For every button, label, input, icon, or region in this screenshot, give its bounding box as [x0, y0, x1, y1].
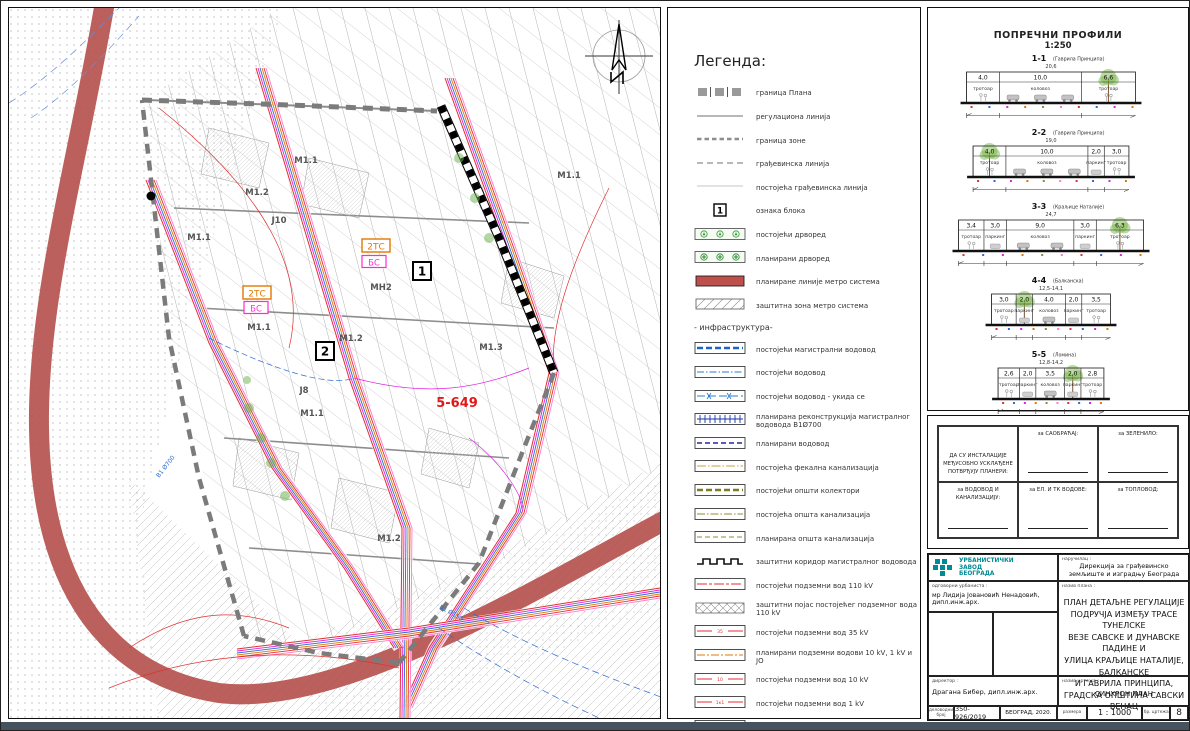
kv10-icon: 10: [694, 671, 750, 690]
svg-text:2ТС: 2ТС: [367, 243, 385, 253]
cross-sections-body: 1-1 (Гаврила Принципа) 20,6 4,010,06,6тр…: [928, 51, 1188, 421]
legend-item-label: планирани подземни водови 10 kV, 1 kV и …: [750, 649, 920, 665]
cross-sections-title: ПОПРЕЧНИ ПРОФИЛИ: [928, 30, 1188, 41]
zone-label: М1.3: [479, 343, 503, 353]
wv-remove-icon: [694, 388, 750, 407]
planned-ts-marker: 2ТС: [243, 286, 271, 300]
svg-text:паркинг: паркинг: [1086, 161, 1106, 166]
signature-cell-heating: за ТОПЛОВОД:: [1098, 482, 1178, 538]
legend-item: планиране линије метро система: [694, 273, 920, 292]
legend-item-label: граница Плана: [750, 89, 812, 97]
window-bottom-edge: [1, 722, 1189, 730]
legend-item-label: планирани водовод: [750, 440, 829, 448]
svg-text:коловоз: коловоз: [1031, 87, 1051, 92]
kol-bold-icon: [694, 482, 750, 501]
plan-title-cell: назив плана : ПЛАН ДЕТАЉНЕ РЕГУЛАЦИЈЕ ПО…: [1058, 581, 1190, 676]
svg-text:1к1: 1к1: [716, 700, 725, 706]
kv35-icon: 35: [694, 623, 750, 642]
kv10-plan-icon: [694, 647, 750, 666]
legend-panel: Легенда: граница Планарегулациона линија…: [667, 7, 921, 719]
signature-cell-traffic: за САОБРАЋАЈ:: [1018, 426, 1098, 482]
svg-text:4,0: 4,0: [985, 149, 995, 156]
title-block: УРБАНИСТИЧКИ ЗАВОД БЕОГРАДА одговорни ур…: [927, 553, 1189, 721]
number-label: деловодни број: [929, 708, 953, 717]
planned-bs-marker: БС: [244, 302, 268, 315]
legend-item-label: планирана реконструкција магистралног во…: [750, 413, 920, 429]
svg-text:паркинг: паркинг: [1075, 235, 1095, 240]
legend-item-label: граница зоне: [750, 137, 806, 145]
cross-section-2-2: 2-2 (Гаврила Принципа) 19,0 4,010,02,03,…: [928, 125, 1174, 195]
drawing-name-cell: назив цртежа : СИНХРОН ПЛАН: [1058, 676, 1190, 707]
signature-cell-electric: за ЕЛ. И ТК ВОДОВЕ:: [1018, 482, 1098, 538]
block-number-marker: 2: [316, 342, 334, 360]
zone-label: М1.1: [247, 323, 271, 333]
metro-zone-icon: [694, 296, 750, 315]
legend-item: граница зоне: [694, 131, 920, 150]
legend-item: заштитна зона метро система: [694, 296, 920, 315]
legend-item-label: планирани дрворед: [750, 255, 830, 263]
legend-item-label: грађевинска линија: [750, 160, 829, 168]
svg-text:тротоар: тротоар: [1086, 309, 1106, 314]
svg-text:коловоз: коловоз: [1037, 161, 1057, 166]
svg-text:2: 2: [321, 345, 329, 359]
legend-item: постојећи водовод: [694, 364, 920, 383]
legend-item-label: постојећи дрворед: [750, 231, 826, 239]
svg-text:2,0: 2,0: [1020, 297, 1030, 304]
planned-ts-marker: 2ТС: [362, 239, 390, 253]
svg-text:паркинг: паркинг: [1063, 383, 1083, 388]
kv110-zone-icon: [694, 600, 750, 619]
svg-text:3-3: 3-3: [1032, 202, 1046, 211]
signature-line: [1028, 472, 1087, 473]
svg-text:1: 1: [717, 206, 723, 216]
svg-text:(Краљице Наталије): (Краљице Наталије): [1053, 205, 1104, 211]
legend-item: постојећа грађевинска линија: [694, 178, 920, 197]
svg-text:тротоар: тротоар: [994, 309, 1014, 314]
legend-item-label: планирана општа канализација: [750, 535, 874, 543]
svg-text:6,6: 6,6: [1104, 75, 1114, 82]
dash-bold-gray-icon: [694, 131, 750, 150]
svg-text:тротоар: тротоар: [1107, 161, 1127, 166]
svg-text:1: 1: [418, 265, 426, 279]
legend-item: планирани подземни водови 10 kV, 1 kV и …: [694, 647, 920, 666]
urbanist-cell: одговорни урбаниста : мр Лидија Јованови…: [928, 581, 1058, 612]
metro-fill-icon: [694, 273, 750, 292]
zone-label: Ј8: [298, 386, 308, 396]
svg-text:5-5: 5-5: [1032, 350, 1047, 359]
svg-text:тротоар: тротоар: [1110, 235, 1130, 240]
kv1-icon: 1к1: [694, 694, 750, 713]
trees-planned-icon: [694, 249, 750, 268]
legend-item-label: ознака блока: [750, 207, 805, 215]
elevation-red-label: 5-649: [436, 396, 478, 411]
svg-text:9,0: 9,0: [1035, 223, 1045, 230]
legend-item: планирана реконструкција магистралног во…: [694, 411, 920, 430]
planned-bs-marker: БС: [362, 256, 386, 269]
legend-item-label: постојећа фекална канализација: [750, 464, 879, 472]
svg-text:(Гаврила Принципа): (Гаврила Принципа): [1053, 57, 1105, 63]
svg-text:тротоар: тротоар: [999, 383, 1019, 388]
svg-text:2-2: 2-2: [1032, 128, 1046, 137]
signature-line: [948, 528, 1007, 529]
client-name: Дирекција за грађевинско земљиште и изгр…: [1059, 562, 1189, 578]
svg-text:2,0: 2,0: [1091, 149, 1101, 156]
wv-recon-icon: [694, 411, 750, 430]
cross-section-4-4: 4-4 (Балканска) 12,5-14,1 3,02,04,02,03,…: [928, 273, 1174, 343]
legend-item: постојећи подземни вод 110 kV: [694, 576, 920, 595]
legend-item: планирани водовод: [694, 435, 920, 454]
empty-cell: [993, 612, 1058, 676]
svg-text:2,0: 2,0: [1068, 371, 1078, 378]
sheet-number: 8: [1170, 705, 1188, 720]
svg-text:паркинг: паркинг: [1018, 383, 1038, 388]
zone-label: МН2: [370, 283, 392, 293]
signature-line: [1108, 528, 1167, 529]
urbanist-name: мр Лидија Јовановић Ненадовић, дипл.инж.…: [929, 589, 1057, 606]
block-number-marker: 1: [413, 262, 431, 280]
zone-label: М1.1: [294, 156, 318, 166]
svg-text:4,0: 4,0: [1044, 297, 1054, 304]
director-cell: директор : Драгана Бибер, дипл.инж.арх.: [928, 676, 1058, 707]
plan-boundary-icon: [694, 84, 750, 103]
legend-item-label: постојећи подземни вод 10 kV: [750, 676, 868, 684]
legend-item: 10постојећи подземни вод 10 kV: [694, 671, 920, 690]
title-logo-cell: УРБАНИСТИЧКИ ЗАВОД БЕОГРАДА: [928, 554, 1058, 581]
map-panel: М1.1М1.2М1.1М1.2Ј10МН2М1.1М1.3Ј8М1.1М1.2…: [8, 7, 661, 719]
document-number: 350-926/2019: [954, 705, 1000, 720]
legend-item: постојећи водовод - укида се: [694, 388, 920, 407]
urban-plan-map: М1.1М1.2М1.1М1.2Ј10МН2М1.1М1.3Ј8М1.1М1.2…: [9, 8, 660, 718]
svg-text:тротоар: тротоар: [980, 161, 1000, 166]
wv-exist-icon: [694, 364, 750, 383]
signatures-panel: ДА СУ ИНСТАЛАЦИЈЕ МЕЂУСОБНО УСКЛАЂЕНЕ ПО…: [927, 415, 1189, 549]
solid-gray-icon: [694, 108, 750, 127]
trees-existing-icon: [694, 226, 750, 245]
legend-item-label: планиране линије метро система: [750, 278, 880, 286]
title-block-bottom-row: деловодни број 350-926/2019 БЕОГРАД, 202…: [928, 705, 1188, 720]
svg-text:4,0: 4,0: [978, 75, 988, 82]
svg-text:2ТС: 2ТС: [248, 290, 266, 300]
ok-line-icon: [694, 506, 750, 525]
thin-gray-icon: [694, 178, 750, 197]
svg-text:2,6: 2,6: [1004, 371, 1014, 378]
svg-text:12,5-14,1: 12,5-14,1: [1039, 286, 1063, 292]
legend-item: заштитни појас постојећег подземног вода…: [694, 600, 920, 619]
svg-text:тротоар: тротоар: [1083, 383, 1103, 388]
legend-rows: граница Планарегулациона линијаграница з…: [694, 84, 920, 731]
svg-text:3,5: 3,5: [1045, 371, 1055, 378]
legend-item-label: постојећи подземни вод 110 kV: [750, 582, 873, 590]
scale-label: размера: [1063, 710, 1081, 715]
signature-cell-greenery: за ЗЕЛЕНИЛО:: [1098, 426, 1178, 482]
zone-label: М1.2: [339, 334, 363, 344]
zone-label: М1.1: [557, 171, 581, 181]
installation-dot: [147, 192, 156, 201]
zone-label: Ј10: [271, 216, 287, 226]
block-box-icon: 1: [694, 202, 750, 221]
legend-item: регулациона линија: [694, 108, 920, 127]
svg-text:3,5: 3,5: [1091, 297, 1101, 304]
drawing-scale: 1 : 1000: [1087, 705, 1143, 720]
svg-text:35: 35: [717, 630, 723, 636]
legend-item: постојећи дрворед: [694, 226, 920, 245]
signature-line: [1028, 528, 1087, 529]
svg-text:10,0: 10,0: [1034, 75, 1048, 82]
svg-text:2,0: 2,0: [1069, 297, 1079, 304]
signature-cell-water: за ВОДОВОД И КАНАЛИЗАЦИЈУ:: [938, 482, 1018, 538]
zone-label: М1.1: [187, 233, 211, 243]
legend-infrastructure-subheader: - инфраструктура-: [694, 323, 920, 332]
svg-text:6,3: 6,3: [1115, 223, 1125, 230]
zone-label: М1.2: [377, 534, 401, 544]
legend-item: постојећи општи колектори: [694, 482, 920, 501]
svg-text:10,0: 10,0: [1040, 149, 1054, 156]
corridor-step-icon: [694, 553, 750, 572]
signatures-statement: ДА СУ ИНСТАЛАЦИЈЕ МЕЂУСОБНО УСКЛАЂЕНЕ ПО…: [942, 453, 1014, 477]
svg-text:паркинг: паркинг: [1064, 309, 1084, 314]
cross-sections-scale: 1:250: [928, 41, 1188, 51]
wv-mag-icon: [694, 340, 750, 359]
legend-title: Легенда:: [694, 52, 920, 70]
svg-text:паркинг: паркинг: [1014, 309, 1034, 314]
svg-text:БС: БС: [250, 305, 262, 315]
legend-item-label: постојећи општи колектори: [750, 487, 860, 495]
wv-plan-icon: [694, 435, 750, 454]
legend-item-label: заштитни коридор магистралног водовода: [750, 558, 917, 566]
cross-section-3-3: 3-3 (Краљице Наталије) 24,7 3,43,09,03,0…: [928, 199, 1174, 269]
legend-item: 1ознака блока: [694, 202, 920, 221]
svg-text:коловоз: коловоз: [1030, 235, 1050, 240]
legend-item: постојећа општа канализација: [694, 506, 920, 525]
dash-gray-icon: [694, 155, 750, 174]
svg-text:1-1: 1-1: [1032, 54, 1047, 63]
cross-section-5-5: 5-5 (Ломина) 12,8-14,2 2,62,03,52,02,8тр…: [928, 347, 1174, 417]
svg-text:20,6: 20,6: [1045, 64, 1056, 70]
empty-cell: [928, 612, 993, 676]
svg-text:тротоар: тротоар: [1099, 87, 1119, 92]
legend-item-label: заштитна зона метро система: [750, 302, 868, 310]
director-name: Драгана Бибер, дипл.инж.арх.: [929, 684, 1057, 696]
signatures-grid: ДА СУ ИНСТАЛАЦИЈЕ МЕЂУСОБНО УСКЛАЂЕНЕ ПО…: [937, 425, 1179, 539]
svg-text:паркинг: паркинг: [985, 235, 1005, 240]
svg-text:БС: БС: [368, 259, 380, 269]
svg-text:(Гаврила Принципа): (Гаврила Принципа): [1053, 131, 1105, 137]
ok-plan-icon: [694, 529, 750, 548]
signatures-statement-cell: ДА СУ ИНСТАЛАЦИЈЕ МЕЂУСОБНО УСКЛАЂЕНЕ ПО…: [938, 426, 1018, 482]
fk-line-icon: [694, 458, 750, 477]
urban-institute-logo-icon: [933, 558, 955, 578]
svg-text:3,0: 3,0: [1080, 223, 1090, 230]
signature-line: [1108, 472, 1167, 473]
legend-item: 1к1постојећи подземни вод 1 kV: [694, 694, 920, 713]
svg-text:19,0: 19,0: [1045, 138, 1056, 144]
cross-section-1-1: 1-1 (Гаврила Принципа) 20,6 4,010,06,6тр…: [928, 51, 1174, 121]
sheet-label: бр. цртежа: [1144, 710, 1169, 715]
legend-item-label: постојећи водовод - укида се: [750, 393, 865, 401]
cross-sections-panel: ПОПРЕЧНИ ПРОФИЛИ 1:250 1-1 (Гаврила Прин…: [927, 7, 1189, 411]
legend-item: граница Плана: [694, 84, 920, 103]
svg-text:(Ломина): (Ломина): [1053, 353, 1076, 359]
legend-item: заштитни коридор магистралног водовода: [694, 553, 920, 572]
svg-text:12,8-14,2: 12,8-14,2: [1039, 360, 1063, 366]
svg-text:тротоар: тротоар: [973, 87, 993, 92]
svg-text:(Балканска): (Балканска): [1053, 279, 1084, 285]
legend-item: грађевинска линија: [694, 155, 920, 174]
svg-text:3,0: 3,0: [990, 223, 1000, 230]
legend-item-label: регулациона линија: [750, 113, 830, 121]
legend-item-label: постојећи магистрални водовод: [750, 346, 876, 354]
zone-label: М1.2: [245, 188, 269, 198]
svg-text:3,0: 3,0: [999, 297, 1009, 304]
plan-sheet: М1.1М1.2М1.1М1.2Ј10МН2М1.1М1.3Ј8М1.1М1.2…: [0, 0, 1190, 731]
svg-text:2,0: 2,0: [1023, 371, 1033, 378]
place-year: БЕОГРАД, 2020.: [1000, 705, 1058, 720]
svg-text:коловоз: коловоз: [1039, 309, 1059, 314]
zone-label: М1.1: [300, 409, 324, 419]
legend-item-label: постојећа општа канализација: [750, 511, 870, 519]
legend-item-label: постојећи водовод: [750, 369, 825, 377]
logo-text: УРБАНИСТИЧКИ ЗАВОД БЕОГРАДА: [959, 558, 1014, 578]
legend-item-label: постојећи подземни вод 1 kV: [750, 700, 864, 708]
legend-item-label: постојећи подземни вод 35 kV: [750, 629, 868, 637]
drawing-name: СИНХРОН ПЛАН: [1059, 684, 1189, 698]
legend-item: 35постојећи подземни вод 35 kV: [694, 623, 920, 642]
svg-text:3,0: 3,0: [1112, 149, 1122, 156]
svg-text:2,8: 2,8: [1088, 371, 1098, 378]
legend-item-label: заштитни појас постојећег подземног вода…: [750, 601, 920, 617]
cross-sections-header: ПОПРЕЧНИ ПРОФИЛИ 1:250: [928, 8, 1188, 51]
legend-item: постојећа фекална канализација: [694, 458, 920, 477]
kv110-icon: [694, 576, 750, 595]
svg-text:4-4: 4-4: [1032, 276, 1047, 285]
svg-text:3,4: 3,4: [966, 223, 976, 230]
svg-text:тротоар: тротоар: [961, 235, 981, 240]
legend-item-label: постојећа грађевинска линија: [750, 184, 868, 192]
svg-text:коловоз: коловоз: [1041, 383, 1061, 388]
client-cell: наручилац : Дирекција за грађевинско зем…: [1058, 554, 1190, 581]
legend-item: планирана општа канализација: [694, 529, 920, 548]
svg-text:24,7: 24,7: [1045, 212, 1056, 218]
legend-item: планирани дрворед: [694, 249, 920, 268]
legend-item: постојећи магистрални водовод: [694, 340, 920, 359]
svg-text:10: 10: [717, 677, 723, 683]
